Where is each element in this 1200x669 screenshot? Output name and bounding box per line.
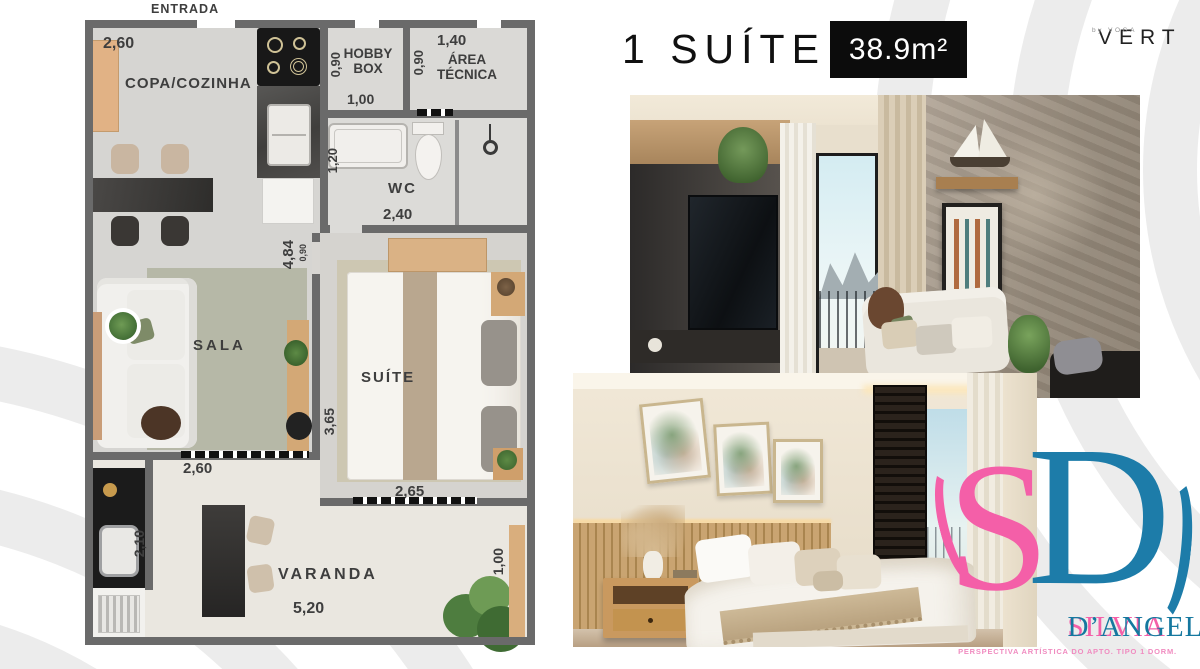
balcony-bench bbox=[509, 525, 525, 643]
drawer-knob bbox=[648, 618, 653, 623]
wall-shelf bbox=[936, 177, 1018, 189]
pillow bbox=[812, 570, 843, 592]
wall bbox=[145, 460, 153, 590]
entrance-label: ENTRADA bbox=[151, 3, 219, 17]
dim-grill-depth: 2,10 bbox=[132, 530, 147, 557]
door-transom bbox=[816, 125, 878, 153]
wall bbox=[320, 28, 328, 118]
kitchen-sink bbox=[267, 104, 311, 166]
entrance-door-opening bbox=[197, 20, 235, 28]
wall bbox=[85, 20, 93, 645]
balcony-table bbox=[202, 505, 245, 617]
living-room-render bbox=[630, 95, 1140, 398]
burner bbox=[267, 61, 280, 74]
grill-panel bbox=[98, 595, 140, 633]
pampas-grass bbox=[621, 505, 685, 557]
kitchen-island bbox=[93, 178, 213, 212]
dim-technical-depth: 0,90 bbox=[412, 50, 426, 75]
wall-art-frame bbox=[713, 422, 773, 497]
dim-hobby-depth: 1,00 bbox=[347, 92, 374, 107]
floor-plan: ENTRADA bbox=[85, 20, 535, 645]
burner bbox=[290, 58, 307, 75]
room-label-living: SALA bbox=[193, 338, 246, 355]
watercolor-art bbox=[722, 430, 765, 488]
desk-chair bbox=[286, 412, 312, 440]
dim-balcony-depth: 1,00 bbox=[491, 548, 506, 575]
shower-glass-wall bbox=[455, 120, 459, 225]
balcony-door-sill bbox=[181, 451, 309, 458]
island-chair bbox=[111, 216, 139, 246]
wall-opening bbox=[355, 20, 379, 28]
dim-wc-depth: 1,20 bbox=[326, 148, 340, 173]
dim-suite-width: 2,65 bbox=[395, 484, 424, 501]
room-label-wc: WC bbox=[388, 181, 417, 198]
pillow bbox=[694, 533, 755, 583]
bed-pillow bbox=[481, 320, 517, 386]
room-label-hobby-box: HOBBYBOX bbox=[337, 47, 399, 77]
pillow bbox=[881, 319, 920, 350]
wall-art-frame bbox=[773, 439, 823, 503]
stove-cooktop bbox=[257, 28, 320, 86]
nightstand-plant bbox=[497, 450, 517, 470]
wall-opening bbox=[477, 20, 501, 28]
desk-plant bbox=[284, 340, 308, 366]
island-chair bbox=[111, 144, 139, 174]
tv-screen bbox=[688, 195, 778, 330]
pillow bbox=[951, 316, 993, 349]
brand-byline: by VOGA bbox=[1092, 27, 1143, 34]
watercolor-art bbox=[648, 407, 702, 476]
decor-object bbox=[648, 338, 662, 352]
shower-icon bbox=[483, 140, 498, 155]
burner bbox=[293, 37, 306, 50]
wall bbox=[85, 637, 535, 645]
watermark-tagline: PERSPECTIVA ARTÍSTICA DO APTO. TIPO 1 DO… bbox=[935, 647, 1200, 656]
suite-door-opening bbox=[312, 242, 320, 274]
dim-living-width: 2,60 bbox=[183, 461, 212, 478]
wall bbox=[403, 28, 410, 110]
dim-hobby-width: 0,90 bbox=[329, 52, 343, 77]
room-label-suite: SUÍTE bbox=[361, 370, 415, 387]
shelf-plant bbox=[718, 127, 768, 183]
vase bbox=[643, 551, 663, 581]
dim-kitchen-top: 2,60 bbox=[103, 35, 134, 53]
floor-plant bbox=[1008, 315, 1050, 373]
throw-blanket bbox=[141, 406, 181, 440]
wc-door-opening bbox=[330, 225, 362, 233]
dim-hall-height: 4,84 bbox=[281, 240, 298, 269]
burner bbox=[267, 37, 283, 53]
dim-wc-width: 2,40 bbox=[383, 207, 412, 224]
island-chair bbox=[161, 216, 189, 246]
pillow bbox=[836, 554, 881, 590]
watercolor-art bbox=[781, 447, 815, 495]
dim-suite-depth: 3,65 bbox=[322, 408, 337, 435]
nightstand-shelf bbox=[613, 586, 688, 604]
model-ship-hull bbox=[950, 157, 1010, 167]
marketing-sheet: ENTRADA bbox=[0, 0, 1200, 669]
wall bbox=[85, 20, 535, 28]
monogram-s: S bbox=[947, 435, 1050, 620]
pillow bbox=[915, 324, 957, 356]
oars-artwork bbox=[954, 219, 994, 289]
sheer-curtain bbox=[780, 123, 816, 393]
unit-title: 1 SUÍTE bbox=[622, 26, 826, 73]
room-label-kitchen: COPA/COZINHA bbox=[125, 76, 252, 93]
balcony-chair bbox=[246, 563, 275, 593]
room-label-balcony: VARANDA bbox=[278, 566, 378, 584]
wc-door-sill bbox=[417, 109, 453, 116]
plant-leaves bbox=[109, 312, 137, 340]
potted-plant bbox=[105, 308, 141, 344]
dark-slatted-door bbox=[873, 385, 927, 587]
room-label-technical-area: ÁREATÉCNICA bbox=[415, 53, 519, 83]
designer-last-name: D’ANGELO bbox=[1068, 611, 1200, 644]
dim-balcony-width: 5,20 bbox=[293, 600, 324, 618]
silvia-dangelo-watermark: D S SILVIA D’ANGELO PERSPECTIVA ARTÍSTIC… bbox=[935, 455, 1200, 669]
dim-technical-width: 1,40 bbox=[437, 33, 466, 50]
books bbox=[673, 570, 697, 578]
kitchen-cabinet bbox=[91, 40, 119, 132]
wardrobe bbox=[388, 238, 487, 272]
area-badge: 38.9m² bbox=[830, 21, 967, 78]
fridge bbox=[262, 178, 314, 224]
wall bbox=[527, 20, 535, 645]
decor-bowl bbox=[103, 483, 117, 497]
suite-desk-plant bbox=[497, 278, 515, 296]
island-chair bbox=[161, 144, 189, 174]
dim-hall-width: 0,90 bbox=[299, 244, 309, 262]
wall-art-frame bbox=[639, 398, 711, 484]
